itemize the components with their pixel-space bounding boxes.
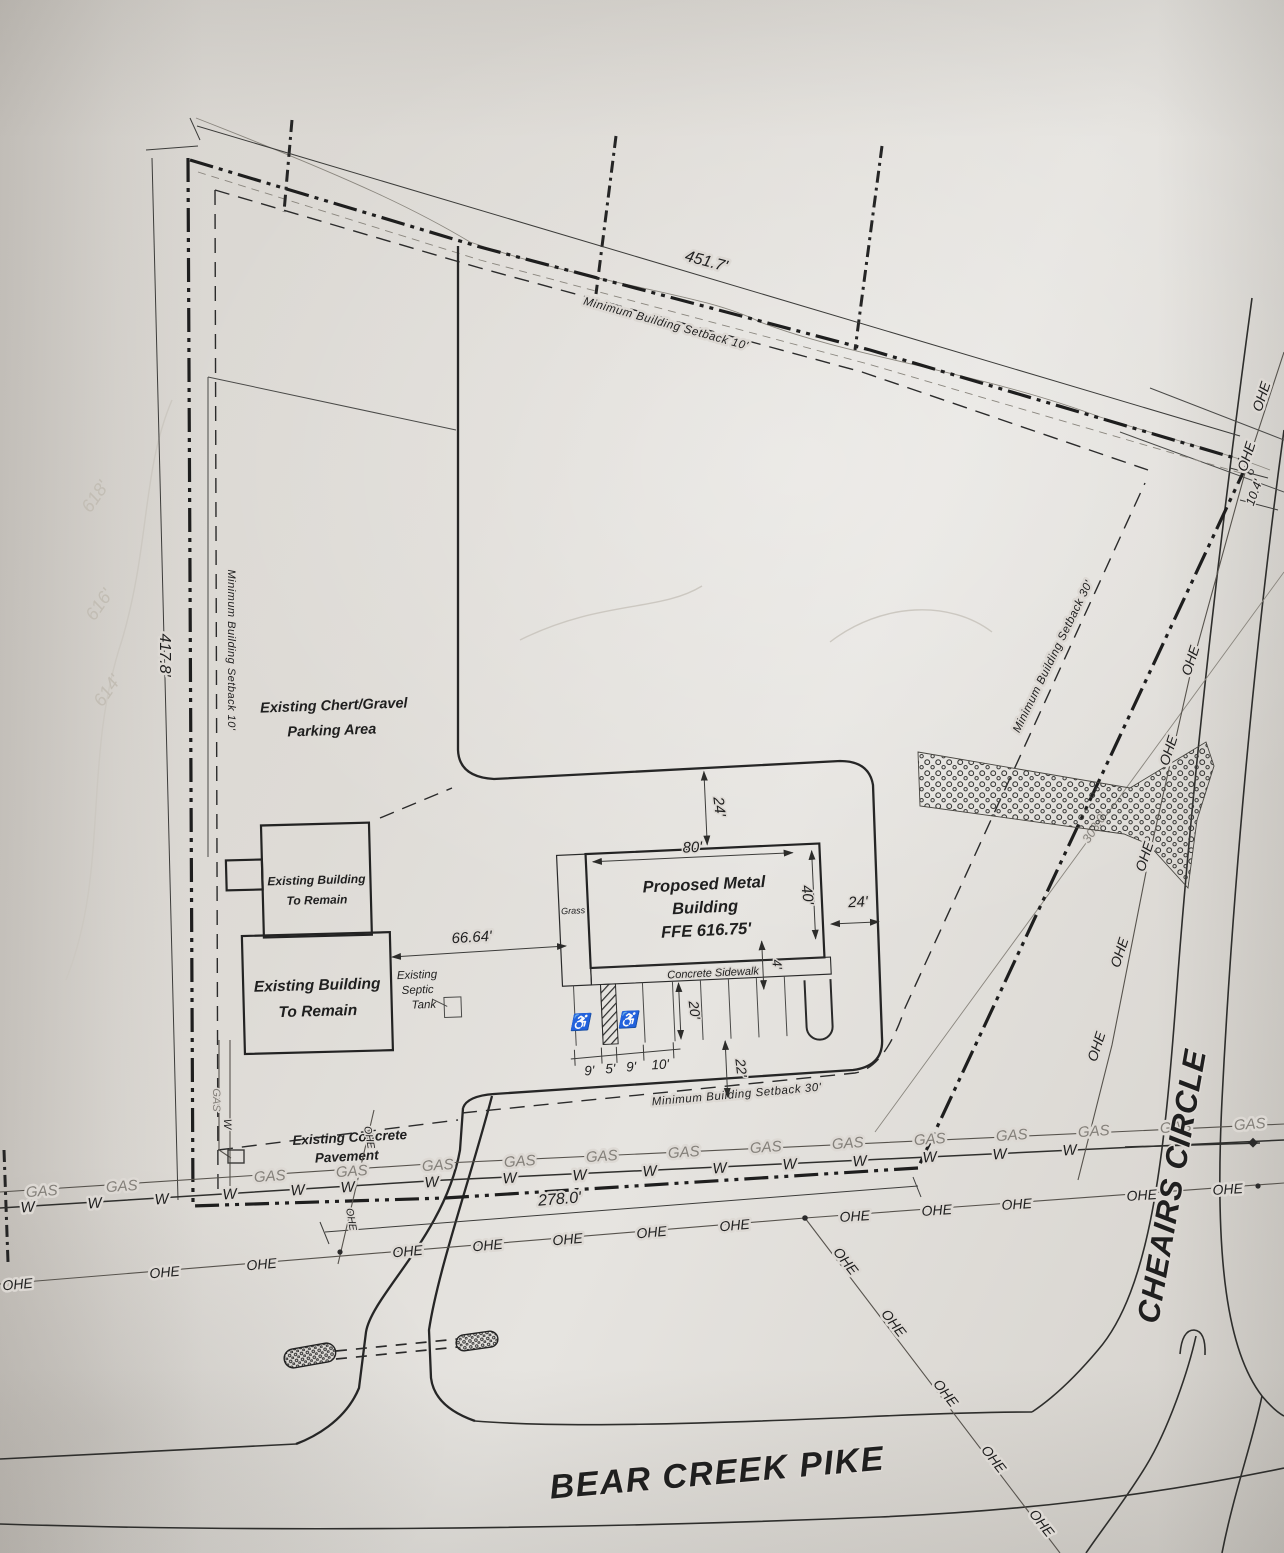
septic-label-1: Existing <box>397 969 438 982</box>
ohe-label: OHE <box>1001 1195 1033 1213</box>
property-boundary <box>4 120 1248 1262</box>
water-label: W <box>502 1169 519 1187</box>
septic-tank: Existing Septic Tank <box>397 968 462 1019</box>
utility-lines <box>0 352 1284 1553</box>
water-label: W <box>154 1190 171 1208</box>
ohe-label: OHE <box>552 1230 584 1249</box>
existing-building-north-label-1: Existing Building <box>267 872 366 889</box>
water-label: W <box>572 1166 589 1184</box>
dim-stall-5: 5' <box>605 1061 616 1076</box>
ohe-label-ne: OHE <box>1084 1029 1109 1063</box>
water-label: W <box>1062 1141 1079 1159</box>
water-label: W <box>290 1181 307 1199</box>
proposed-label-3: FFE 616.75' <box>661 920 753 942</box>
dim-walk: 4' <box>769 959 785 971</box>
chert-gravel-label-1: Existing Chert/Gravel <box>260 695 409 716</box>
gap-dimension: 66.64' <box>392 928 566 957</box>
ohe-label: OHE <box>392 1242 424 1261</box>
dim-gap: 66.64' <box>451 928 493 948</box>
septic-label-2: Septic <box>401 984 434 997</box>
existing-building-south-label-1: Existing Building <box>254 975 382 995</box>
dim-stall-9a: 9' <box>584 1063 595 1078</box>
water-label: W <box>222 1185 239 1203</box>
access-aisle-hatch <box>600 984 618 1045</box>
ghost-bleed-through: 618' 616' 614' <box>66 400 992 980</box>
ohe-label-service: OHE <box>343 1207 359 1232</box>
water-label: W <box>340 1178 357 1196</box>
ghost-contour-614: 614' <box>89 671 125 710</box>
septic-label-3: Tank <box>411 999 437 1012</box>
dim-stall-9b: 9' <box>626 1059 637 1074</box>
dim-stall-10: 10' <box>651 1057 670 1073</box>
site-plan-drawing: 618' 616' 614' <box>0 0 1284 1553</box>
existing-building-south-label-2: To Remain <box>278 1002 357 1021</box>
ohe-label-ne: OHE <box>1178 643 1203 677</box>
ohe-label-se: OHE <box>1026 1506 1058 1540</box>
gas-label: GAS <box>105 1177 138 1196</box>
concrete-pavement-label-1: Existing Concrete <box>292 1127 408 1148</box>
dim-drive-east: 24' <box>847 893 869 911</box>
water-label: W <box>782 1155 799 1173</box>
ohe-label-ne: OHE <box>1132 839 1157 873</box>
dim-stall-depth: 20' <box>686 999 704 1021</box>
sidewalk-label: Concrete Sidewalk <box>667 965 760 981</box>
ohe-label: OHE <box>636 1223 668 1242</box>
road-names: BEAR CREEK PIKE CHEAIRS CIRCLE <box>548 1046 1213 1506</box>
dim-south: 278.0' <box>537 1189 583 1209</box>
gas-label: GAS <box>995 1126 1028 1145</box>
concrete-pavement: Existing Concrete Pavement <box>292 1127 408 1166</box>
boundary-dimensions: 451.7' 417.8' 278.0' 10.4' 303.0' <box>146 118 1278 1244</box>
median-island-west <box>283 1342 338 1370</box>
gas-label: GAS <box>253 1167 286 1186</box>
ohe-label: OHE <box>921 1201 953 1219</box>
ohe-label-se: OHE <box>978 1442 1010 1476</box>
gas-label: GAS <box>831 1134 864 1153</box>
site-plan-photo: 618' 616' 614' <box>0 0 1284 1553</box>
water-label: W <box>424 1173 441 1191</box>
water-label: W <box>87 1194 104 1212</box>
dim-north: 451.7' <box>683 248 730 276</box>
ohe-label: OHE <box>719 1216 751 1235</box>
dim-drive-north: 24' <box>709 795 728 818</box>
gas-label: GAS <box>421 1156 454 1175</box>
water-valve <box>1248 1138 1258 1148</box>
proposed-label-2: Building <box>672 897 739 918</box>
water-label: W <box>642 1162 659 1180</box>
ghost-contour-618: 618' <box>77 477 113 516</box>
setback-10-north-label: Minimum Building Setback 10' <box>582 296 750 353</box>
dim-building-depth: 40' <box>798 884 817 907</box>
curb-island <box>804 979 833 1040</box>
utility-pole <box>337 1249 342 1254</box>
existing-buildings: Existing Building To Remain Existing Bui… <box>225 822 393 1054</box>
chert-gravel-label-2: Parking Area <box>287 721 376 740</box>
gas-label: GAS <box>667 1143 700 1162</box>
utility-pole <box>1255 1183 1260 1188</box>
water-label: W <box>712 1159 729 1177</box>
stall-dimensions: 9' 5' 9' 10' 20' 22' <box>568 980 752 1104</box>
water-label: W <box>992 1145 1009 1163</box>
gas-label: GAS <box>749 1138 782 1157</box>
bear-creek-pike-label: BEAR CREEK PIKE <box>548 1439 886 1506</box>
chert-gravel-parking-area: Existing Chert/Gravel Parking Area <box>208 377 456 857</box>
gas-label: GAS <box>1233 1115 1266 1134</box>
utility-pole <box>802 1215 808 1221</box>
grass-label: Grass <box>561 905 586 916</box>
ohe-label: OHE <box>246 1255 278 1274</box>
setback-10-west-label: Minimum Building Setback 10' <box>225 569 237 730</box>
ghost-contour-616: 616' <box>81 585 117 624</box>
ohe-label: OHE <box>472 1236 504 1255</box>
accessible-icon: ♿ <box>570 1012 594 1032</box>
gas-label: GAS <box>503 1152 536 1171</box>
proposed-label-1: Proposed Metal <box>642 873 766 897</box>
gas-label: GAS <box>913 1130 946 1149</box>
gas-label: GAS <box>1077 1122 1110 1141</box>
existing-building-north-label-2: To Remain <box>286 892 347 908</box>
accessible-icon: ♿ <box>618 1010 642 1030</box>
ohe-label-se: OHE <box>830 1244 862 1278</box>
ohe-label-se: OHE <box>930 1376 962 1410</box>
dim-jog: 10.4' <box>1243 477 1266 507</box>
proposed-building-cluster: Grass Proposed Metal Building FFE 616.75… <box>553 764 886 1104</box>
gas-label: GAS <box>585 1147 618 1166</box>
existing-building-annex <box>226 859 263 890</box>
ohe-label-se: OHE <box>878 1306 910 1340</box>
ohe-label: OHE <box>2 1275 34 1294</box>
dim-aisle: 22' <box>732 1057 750 1079</box>
ohe-label: OHE <box>149 1263 181 1282</box>
dim-west: 417.8' <box>156 633 173 677</box>
water-label-vertical: W <box>221 1119 233 1131</box>
water-label: W <box>852 1152 869 1170</box>
setback-30-east-label: Minimum Building Setback 30' <box>1011 578 1095 734</box>
gas-label-vertical: GAS <box>210 1088 222 1112</box>
ohe-label: OHE <box>839 1207 871 1225</box>
water-label: W <box>922 1148 939 1166</box>
ohe-label: OHE <box>1212 1180 1244 1198</box>
median-island-east <box>455 1330 499 1352</box>
water-label: W <box>20 1198 37 1216</box>
dim-building-width: 80' <box>682 839 703 857</box>
ohe-label-ne: OHE <box>1234 439 1259 473</box>
setback-lines: Minimum Building Setback 10' Minimum Bui… <box>215 190 1148 1195</box>
